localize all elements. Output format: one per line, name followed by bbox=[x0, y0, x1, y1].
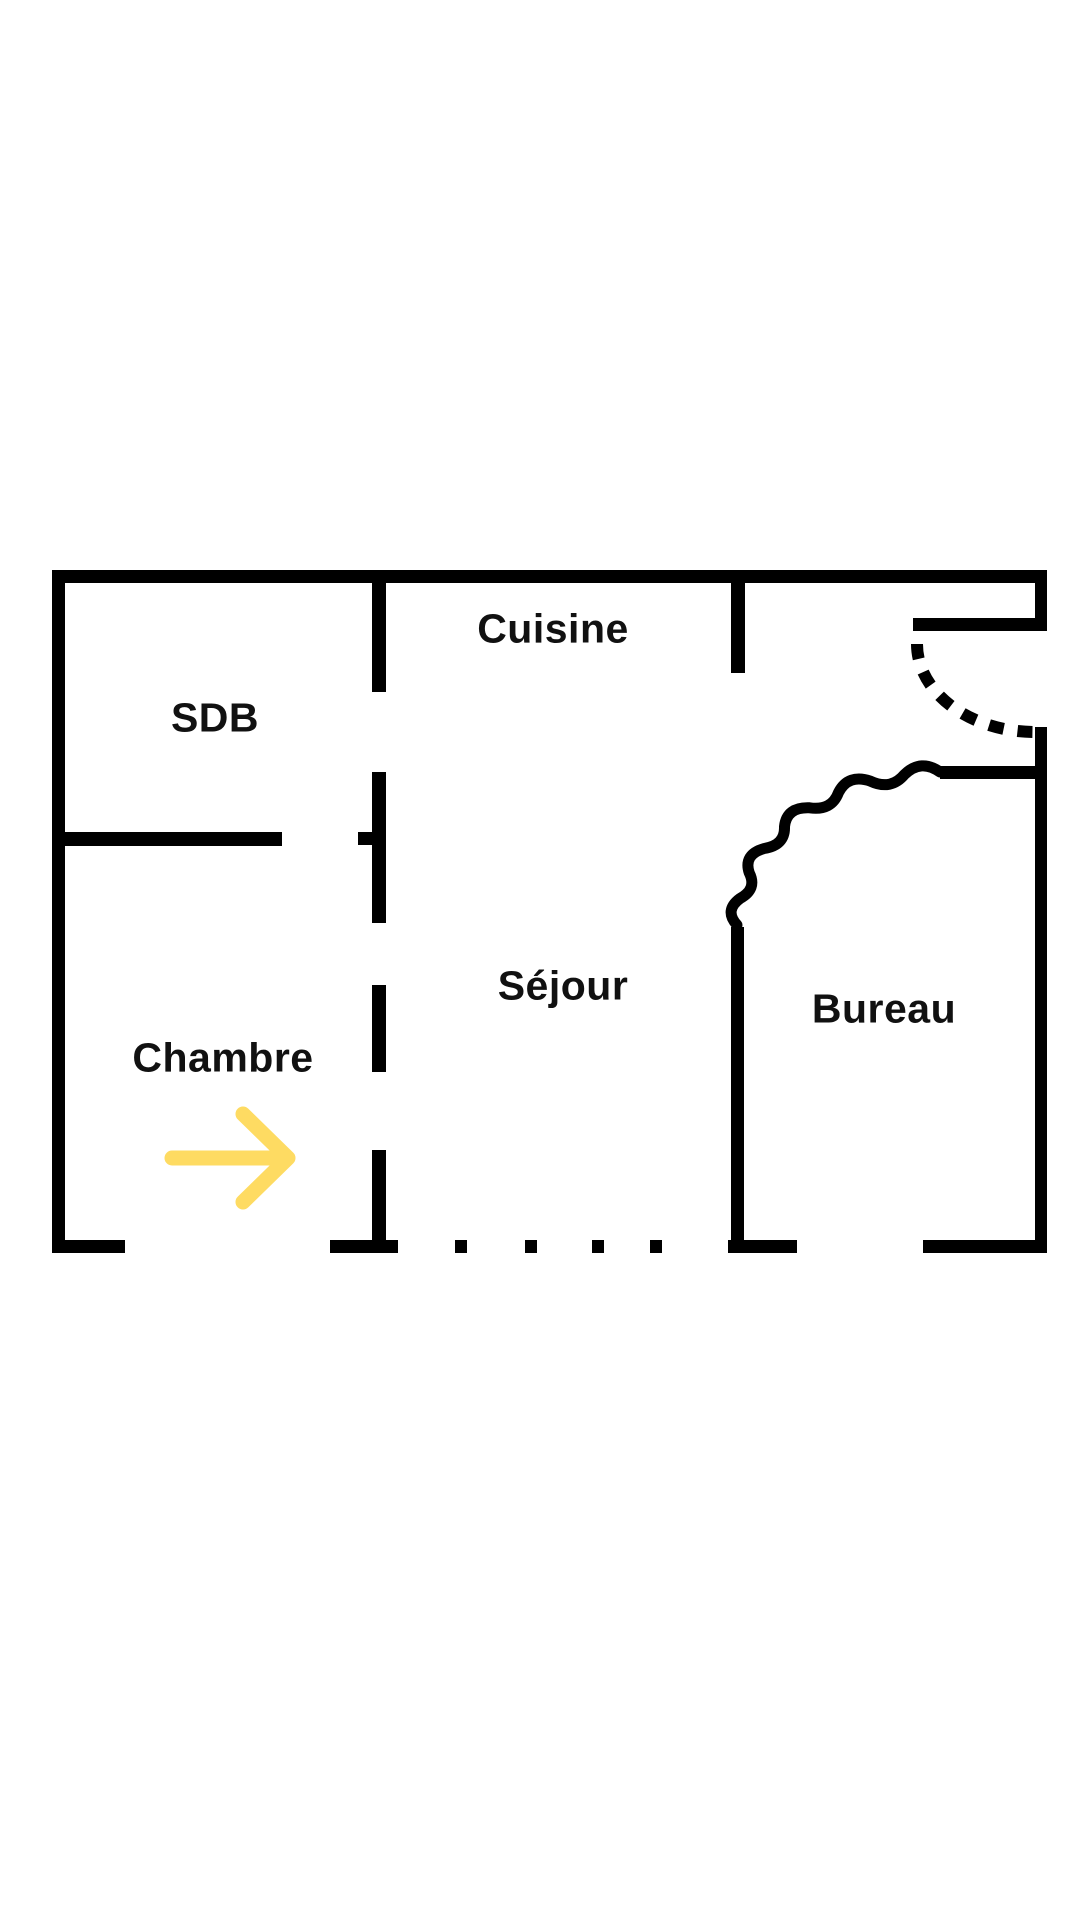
wall-center-stub bbox=[358, 832, 374, 845]
wall-center-dash-3 bbox=[372, 985, 386, 1072]
wall-center-dash-1 bbox=[372, 583, 386, 692]
wall-bureau-left bbox=[731, 927, 744, 1253]
floor-plan-image: Cuisine SDB Séjour Chambre Bureau bbox=[0, 0, 1080, 1920]
wall-bottom-dot-4 bbox=[650, 1240, 662, 1253]
wall-outer-left bbox=[52, 570, 65, 1253]
room-label-cuisine: Cuisine bbox=[477, 606, 629, 653]
wall-center-dash-4 bbox=[372, 1150, 386, 1253]
room-label-chambre: Chambre bbox=[132, 1035, 313, 1082]
wall-bottom-dot-3 bbox=[592, 1240, 604, 1253]
wall-outer-top bbox=[52, 570, 1047, 583]
room-label-sejour: Séjour bbox=[498, 963, 629, 1010]
entry-door-swing-arc bbox=[917, 644, 1035, 732]
wall-bottom-segment-4 bbox=[923, 1240, 1047, 1253]
wall-bottom-segment-1 bbox=[52, 1240, 125, 1253]
wall-cuisine-right bbox=[731, 583, 745, 673]
wall-entry-alcove bbox=[913, 618, 1047, 631]
wall-bureau-top bbox=[940, 766, 1047, 779]
wall-bottom-dot-1 bbox=[455, 1240, 467, 1253]
wall-bottom-dot-2 bbox=[525, 1240, 537, 1253]
direction-arrow bbox=[172, 1114, 288, 1202]
room-label-bureau: Bureau bbox=[812, 986, 956, 1033]
room-label-sdb: SDB bbox=[171, 695, 259, 742]
bureau-door-wavy-arc bbox=[731, 766, 940, 925]
wall-bottom-segment-2 bbox=[330, 1240, 398, 1253]
wall-outer-right-lower bbox=[1035, 727, 1047, 1253]
wall-center-dash-2 bbox=[372, 772, 386, 923]
wall-sdb-chambre-divider bbox=[52, 832, 282, 846]
floor-plan-drawing bbox=[0, 0, 1080, 1920]
